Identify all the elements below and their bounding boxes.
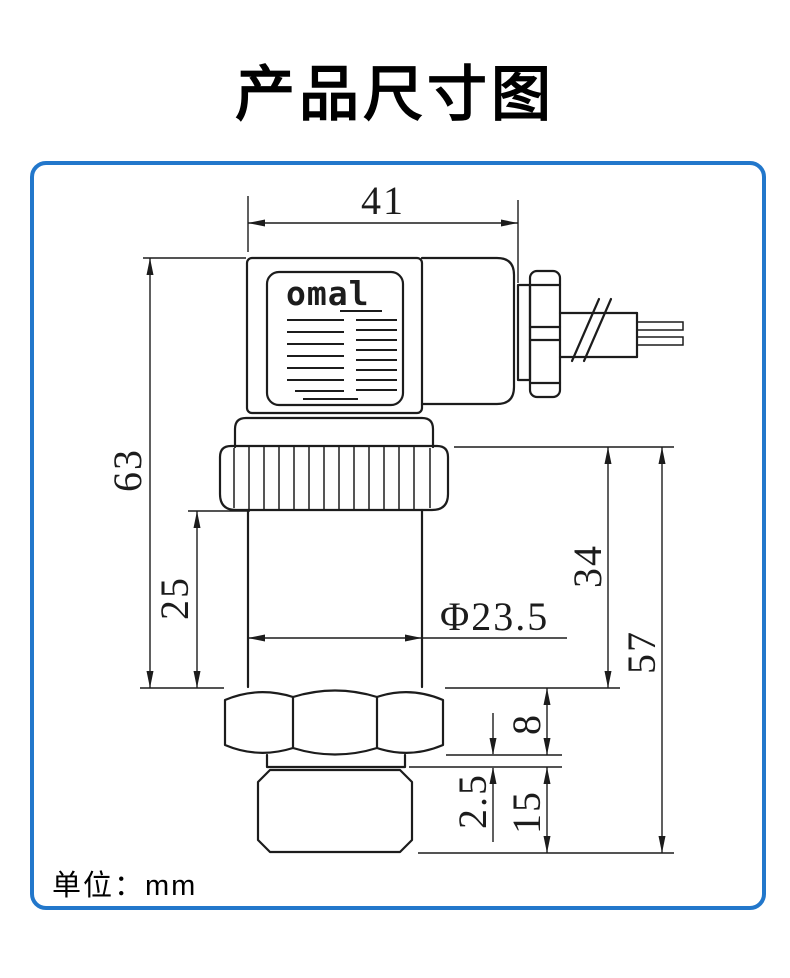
brand-logo: omal (286, 274, 369, 313)
dim-label-41: 41 (361, 178, 405, 223)
dim-label-25: 25 (152, 576, 197, 620)
transmitter-body (220, 418, 448, 852)
dim-body-length: 25 (152, 511, 250, 688)
hex-nut (225, 691, 443, 755)
collar (235, 418, 433, 447)
dim-hex-nut-height: 8 (446, 688, 562, 755)
page: 产品尺寸图 omal (0, 0, 790, 978)
dim-upper-overall-height: 63 (105, 258, 246, 688)
dim-label-57: 57 (619, 630, 664, 674)
dim-label-34: 34 (565, 544, 610, 588)
dim-label-15: 15 (504, 790, 549, 834)
washer (267, 755, 405, 767)
label-text-lines-left (287, 320, 358, 399)
dim-connector-width: 41 (248, 178, 518, 283)
label-text-lines-right (356, 320, 397, 390)
cable-gland (518, 271, 683, 397)
dim-label-diameter: Φ23.5 (440, 594, 549, 639)
dimension-drawing: omal (0, 0, 790, 978)
dim-thread-length: 15 (504, 767, 551, 853)
thread (258, 770, 412, 852)
cable-break-mark (572, 299, 599, 361)
dim-label-63: 63 (105, 448, 150, 492)
dim-label-8: 8 (504, 713, 549, 735)
knurled-ring (220, 446, 448, 510)
cable (560, 299, 637, 361)
lead-wires (637, 322, 683, 345)
unit-label: 单位：mm (52, 862, 197, 904)
dim-body-diameter: Φ23.5 (248, 594, 567, 642)
cylinder-body (248, 510, 422, 687)
din-connector-housing: omal (247, 258, 514, 413)
dim-label-2-5: 2.5 (450, 773, 495, 829)
